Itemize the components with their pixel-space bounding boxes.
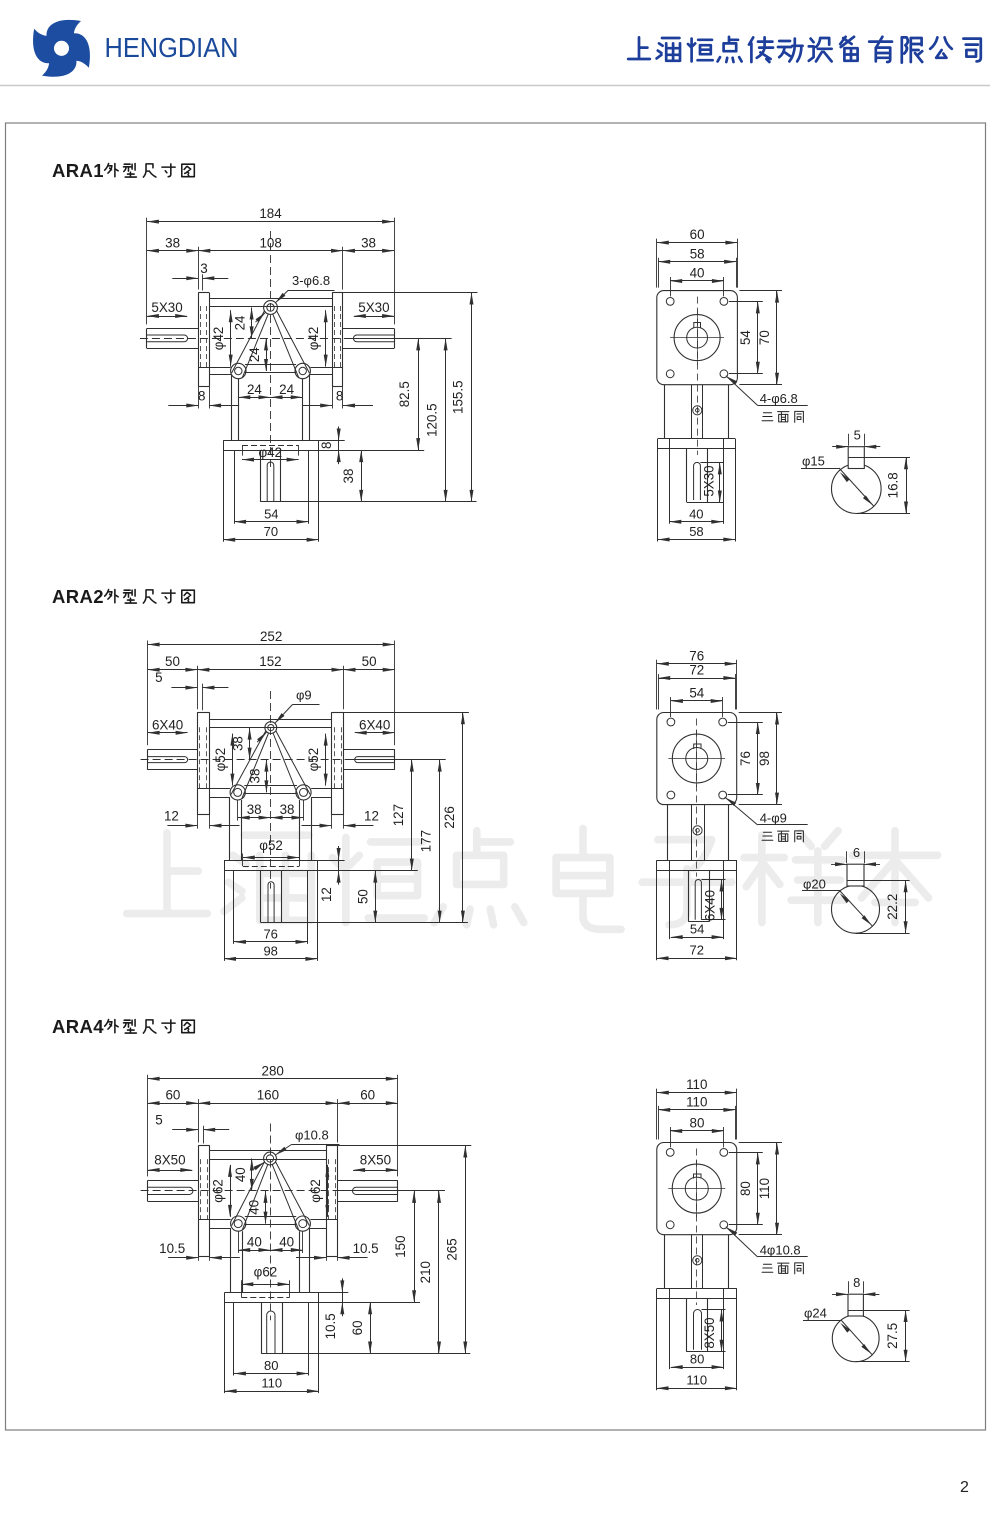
svg-text:4φ10.8: 4φ10.8 xyxy=(760,1243,801,1258)
svg-text:38: 38 xyxy=(280,802,295,817)
svg-text:3-φ6.8: 3-φ6.8 xyxy=(292,273,330,288)
svg-text:110: 110 xyxy=(686,1094,707,1109)
svg-text:58: 58 xyxy=(690,246,705,261)
svg-text:φ9: φ9 xyxy=(296,688,312,703)
svg-text:φ42: φ42 xyxy=(259,445,283,460)
svg-text:ARA1: ARA1 xyxy=(52,160,104,181)
svg-text:40: 40 xyxy=(233,1167,248,1182)
svg-text:108: 108 xyxy=(259,235,281,250)
svg-text:80: 80 xyxy=(690,1352,704,1367)
svg-text:4-φ6.8: 4-φ6.8 xyxy=(760,391,798,406)
svg-text:8: 8 xyxy=(319,442,334,449)
svg-text:76: 76 xyxy=(263,926,277,941)
svg-text:110: 110 xyxy=(686,1077,707,1092)
svg-text:70: 70 xyxy=(757,330,772,345)
svg-text:40: 40 xyxy=(279,1235,294,1250)
svg-text:76: 76 xyxy=(689,648,704,663)
svg-text:120.5: 120.5 xyxy=(425,403,440,437)
svg-text:54: 54 xyxy=(264,506,278,521)
svg-text:5: 5 xyxy=(854,428,861,443)
svg-text:16.8: 16.8 xyxy=(886,472,901,498)
svg-text:φ15: φ15 xyxy=(802,454,825,469)
svg-text:110: 110 xyxy=(261,1376,282,1391)
svg-text:60: 60 xyxy=(360,1088,375,1103)
svg-text:60: 60 xyxy=(350,1320,365,1335)
svg-text:80: 80 xyxy=(690,1116,705,1131)
svg-text:φ52: φ52 xyxy=(213,748,228,772)
svg-text:8X50: 8X50 xyxy=(702,1317,717,1348)
svg-text:80: 80 xyxy=(264,1358,278,1373)
svg-text:24: 24 xyxy=(279,382,294,397)
svg-text:8: 8 xyxy=(853,1275,860,1290)
svg-text:40: 40 xyxy=(247,1200,262,1215)
svg-text:2: 2 xyxy=(960,1479,969,1496)
svg-text:24: 24 xyxy=(233,315,248,330)
svg-text:φ10.8: φ10.8 xyxy=(295,1128,329,1143)
svg-text:HENGDIAN: HENGDIAN xyxy=(105,32,239,63)
svg-text:38: 38 xyxy=(231,736,246,751)
svg-text:22.2: 22.2 xyxy=(885,894,900,920)
svg-text:φ62: φ62 xyxy=(211,1179,226,1203)
svg-text:152: 152 xyxy=(259,654,281,669)
svg-text:58: 58 xyxy=(689,524,703,539)
svg-text:4-φ9: 4-φ9 xyxy=(760,811,787,826)
svg-text:8X50: 8X50 xyxy=(154,1152,185,1167)
svg-text:70: 70 xyxy=(264,524,278,539)
svg-text:265: 265 xyxy=(444,1238,459,1260)
svg-text:φ24: φ24 xyxy=(804,1306,827,1321)
svg-text:82.5: 82.5 xyxy=(397,381,412,407)
svg-text:160: 160 xyxy=(257,1088,279,1103)
svg-text:10.5: 10.5 xyxy=(159,1241,185,1256)
svg-text:40: 40 xyxy=(689,506,703,521)
svg-text:φ52: φ52 xyxy=(259,838,283,853)
svg-text:280: 280 xyxy=(262,1063,284,1078)
svg-text:10.5: 10.5 xyxy=(323,1313,338,1339)
svg-text:60: 60 xyxy=(690,227,705,242)
svg-text:φ20: φ20 xyxy=(803,877,826,892)
svg-text:φ52: φ52 xyxy=(306,748,321,772)
svg-text:12: 12 xyxy=(364,809,379,824)
svg-text:3: 3 xyxy=(200,261,207,276)
svg-text:98: 98 xyxy=(757,751,772,766)
svg-text:98: 98 xyxy=(263,943,277,958)
svg-text:6: 6 xyxy=(853,845,860,860)
svg-text:50: 50 xyxy=(362,654,377,669)
svg-text:5: 5 xyxy=(155,1112,162,1127)
svg-text:12: 12 xyxy=(164,809,179,824)
svg-text:38: 38 xyxy=(361,235,376,250)
svg-text:155.5: 155.5 xyxy=(451,380,466,414)
svg-text:54: 54 xyxy=(689,686,704,701)
svg-text:252: 252 xyxy=(260,629,282,644)
svg-text:5: 5 xyxy=(155,670,162,685)
svg-text:110: 110 xyxy=(757,1178,772,1199)
svg-text:110: 110 xyxy=(686,1373,707,1388)
svg-text:38: 38 xyxy=(165,235,180,250)
svg-text:24: 24 xyxy=(247,347,262,362)
svg-text:φ62: φ62 xyxy=(308,1179,323,1203)
svg-text:8: 8 xyxy=(336,389,343,404)
svg-text:ARA4: ARA4 xyxy=(52,1016,104,1037)
svg-text:ARA2: ARA2 xyxy=(52,586,104,607)
svg-text:127: 127 xyxy=(391,804,406,826)
svg-text:6X40: 6X40 xyxy=(359,718,390,733)
svg-text:210: 210 xyxy=(418,1261,433,1283)
svg-text:226: 226 xyxy=(442,806,457,828)
svg-text:177: 177 xyxy=(419,830,434,852)
svg-text:150: 150 xyxy=(393,1235,408,1257)
svg-text:38: 38 xyxy=(341,469,356,484)
svg-text:12: 12 xyxy=(319,887,334,902)
svg-text:8X50: 8X50 xyxy=(360,1152,391,1167)
svg-text:φ42: φ42 xyxy=(306,327,321,351)
svg-text:5X30: 5X30 xyxy=(702,465,717,496)
svg-text:72: 72 xyxy=(689,663,704,678)
svg-text:10.5: 10.5 xyxy=(353,1241,379,1256)
svg-text:38: 38 xyxy=(247,769,262,784)
svg-text:24: 24 xyxy=(247,382,262,397)
svg-text:8: 8 xyxy=(198,389,205,404)
svg-text:54: 54 xyxy=(690,922,704,937)
svg-text:40: 40 xyxy=(247,1235,262,1250)
svg-text:60: 60 xyxy=(165,1088,180,1103)
svg-text:80: 80 xyxy=(738,1181,753,1196)
svg-text:76: 76 xyxy=(738,751,753,766)
svg-text:5X30: 5X30 xyxy=(151,300,182,315)
svg-text:50: 50 xyxy=(165,654,180,669)
svg-text:φ62: φ62 xyxy=(254,1265,278,1280)
svg-text:54: 54 xyxy=(738,330,753,345)
svg-text:184: 184 xyxy=(259,206,282,221)
svg-text:6X40: 6X40 xyxy=(152,718,183,733)
svg-text:72: 72 xyxy=(690,943,704,958)
svg-text:5X30: 5X30 xyxy=(358,300,389,315)
svg-text:27.5: 27.5 xyxy=(885,1323,900,1349)
svg-text:50: 50 xyxy=(355,889,370,904)
svg-text:φ42: φ42 xyxy=(211,327,226,351)
svg-text:38: 38 xyxy=(247,802,262,817)
svg-text:6X40: 6X40 xyxy=(702,890,717,921)
svg-text:40: 40 xyxy=(690,266,705,281)
